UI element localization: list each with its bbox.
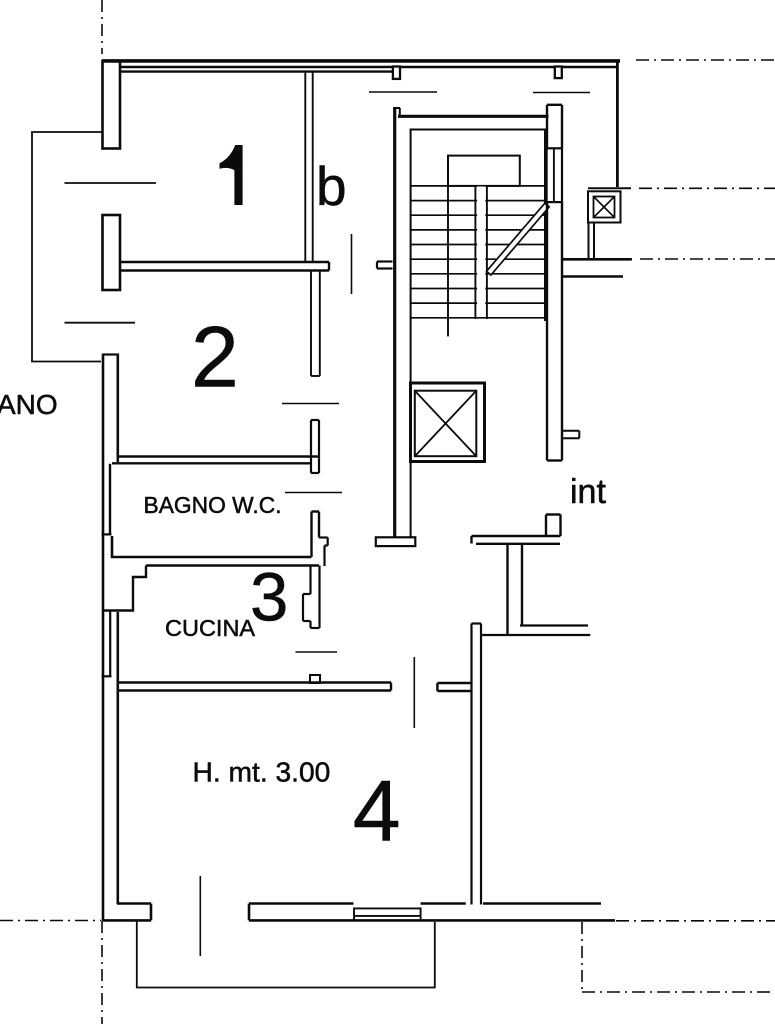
- svg-text:CUCINA: CUCINA: [165, 615, 255, 641]
- svg-text:H. mt. 3.00: H. mt. 3.00: [193, 756, 331, 788]
- svg-text:BAGNO W.C.: BAGNO W.C.: [144, 492, 282, 518]
- svg-text:2: 2: [191, 310, 239, 406]
- svg-text:b: b: [316, 155, 347, 217]
- svg-text:4: 4: [353, 764, 401, 860]
- svg-text:PIANO: PIANO: [0, 389, 58, 420]
- svg-text:3: 3: [250, 559, 288, 636]
- svg-text:int: int: [570, 473, 606, 511]
